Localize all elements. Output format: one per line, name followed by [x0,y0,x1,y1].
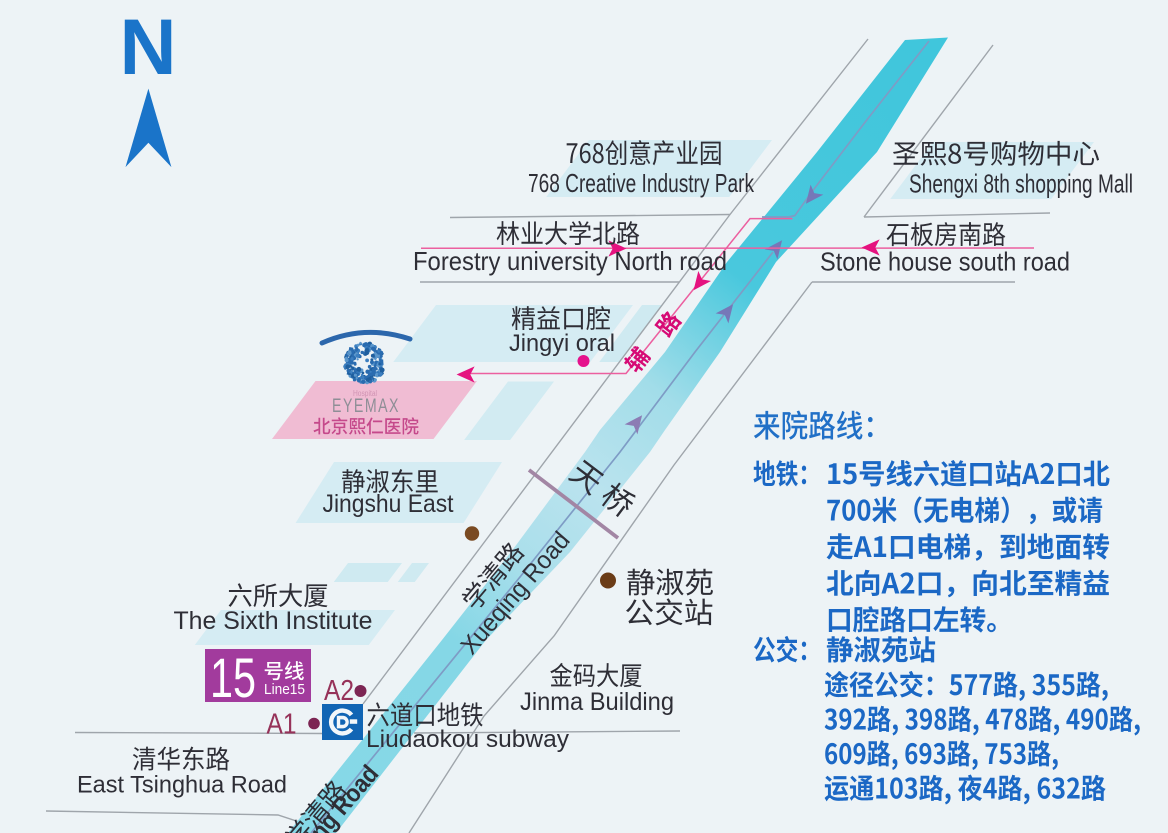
svg-text:A1: A1 [267,709,297,741]
svg-text:Stone house south road: Stone house south road [820,247,1070,277]
svg-text:The Sixth Institute: The Sixth Institute [174,607,373,635]
svg-text:Forestry university North road: Forestry university North road [413,246,727,276]
svg-text:Shengxi 8th shopping Mall: Shengxi 8th shopping Mall [909,169,1133,199]
svg-text:EYEMAX: EYEMAX [332,396,400,417]
svg-text:768 Creative Industry Park: 768 Creative Industry Park [528,168,755,198]
svg-text:Jinma Building: Jinma Building [520,688,674,716]
svg-text:Line15: Line15 [264,682,305,698]
svg-text:East Tsinghua Road: East Tsinghua Road [77,772,287,799]
svg-text:Liudaokou subway: Liudaokou subway [366,726,569,753]
svg-text:15: 15 [210,646,256,709]
svg-text:N: N [119,2,176,91]
svg-text:Jingyi oral: Jingyi oral [509,330,615,357]
svg-text:Jingshu East: Jingshu East [323,490,454,518]
svg-text:A2: A2 [324,675,354,707]
